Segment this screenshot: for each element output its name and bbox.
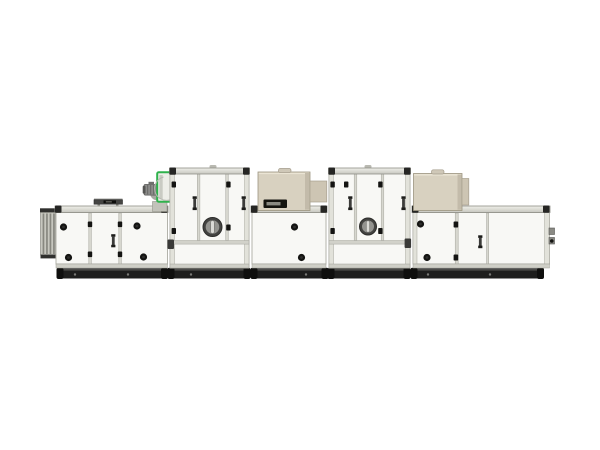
cassette-side-flap — [462, 179, 469, 206]
ahu-illustration — [0, 0, 600, 450]
cassette-handle — [432, 170, 445, 174]
roof-vent-hood — [94, 199, 123, 207]
base-skid — [251, 268, 329, 279]
intake-louver — [40, 208, 57, 258]
roof-cassette-2 — [414, 170, 469, 211]
left-access-module — [55, 199, 168, 268]
center-module — [251, 206, 327, 269]
cassette-handle — [279, 169, 292, 173]
porthole-window — [203, 218, 222, 237]
product-photo — [0, 0, 600, 450]
tall-module-2 — [329, 165, 412, 268]
fan-pedestal — [153, 202, 168, 212]
junction-clamp — [405, 239, 412, 249]
porthole-window — [360, 218, 377, 235]
base-skid — [168, 268, 251, 279]
roof-cassette-1 — [258, 169, 327, 211]
cassette-vent-slot — [264, 200, 288, 209]
cassette-side-flap — [310, 181, 327, 202]
base-skid — [328, 268, 411, 279]
base-skid — [411, 268, 545, 279]
tall-module-1 — [168, 165, 250, 268]
junction-clamp — [168, 240, 175, 250]
base-skids — [57, 268, 545, 279]
right-module — [412, 206, 555, 269]
fan-housing — [155, 172, 172, 201]
base-skid — [57, 268, 169, 279]
